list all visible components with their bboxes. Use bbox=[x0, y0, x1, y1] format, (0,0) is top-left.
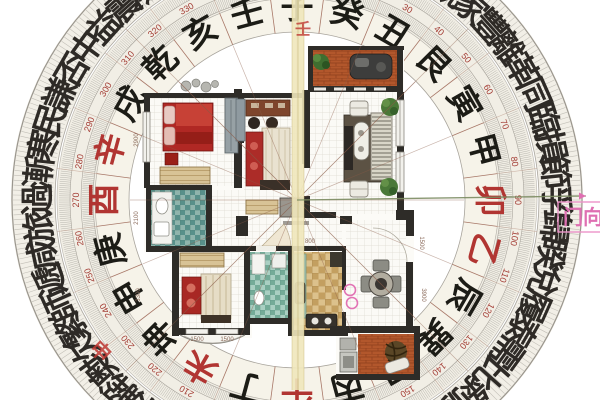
svg-text:800: 800 bbox=[305, 239, 316, 245]
svg-text:1500: 1500 bbox=[418, 236, 424, 250]
svg-text:2900: 2900 bbox=[134, 133, 140, 147]
svg-text:80: 80 bbox=[509, 156, 521, 168]
svg-text:1500: 1500 bbox=[190, 337, 204, 343]
svg-text:卯: 卯 bbox=[471, 184, 508, 217]
svg-text:门向: 门向 bbox=[563, 205, 600, 229]
svg-text:酉: 酉 bbox=[87, 184, 123, 217]
svg-text:3300: 3300 bbox=[136, 288, 142, 302]
svg-text:3900: 3900 bbox=[420, 288, 426, 302]
svg-text:壬: 壬 bbox=[295, 21, 311, 39]
svg-text:2100: 2100 bbox=[134, 211, 140, 225]
svg-text:270: 270 bbox=[71, 192, 81, 207]
svg-text:1500: 1500 bbox=[220, 337, 234, 343]
